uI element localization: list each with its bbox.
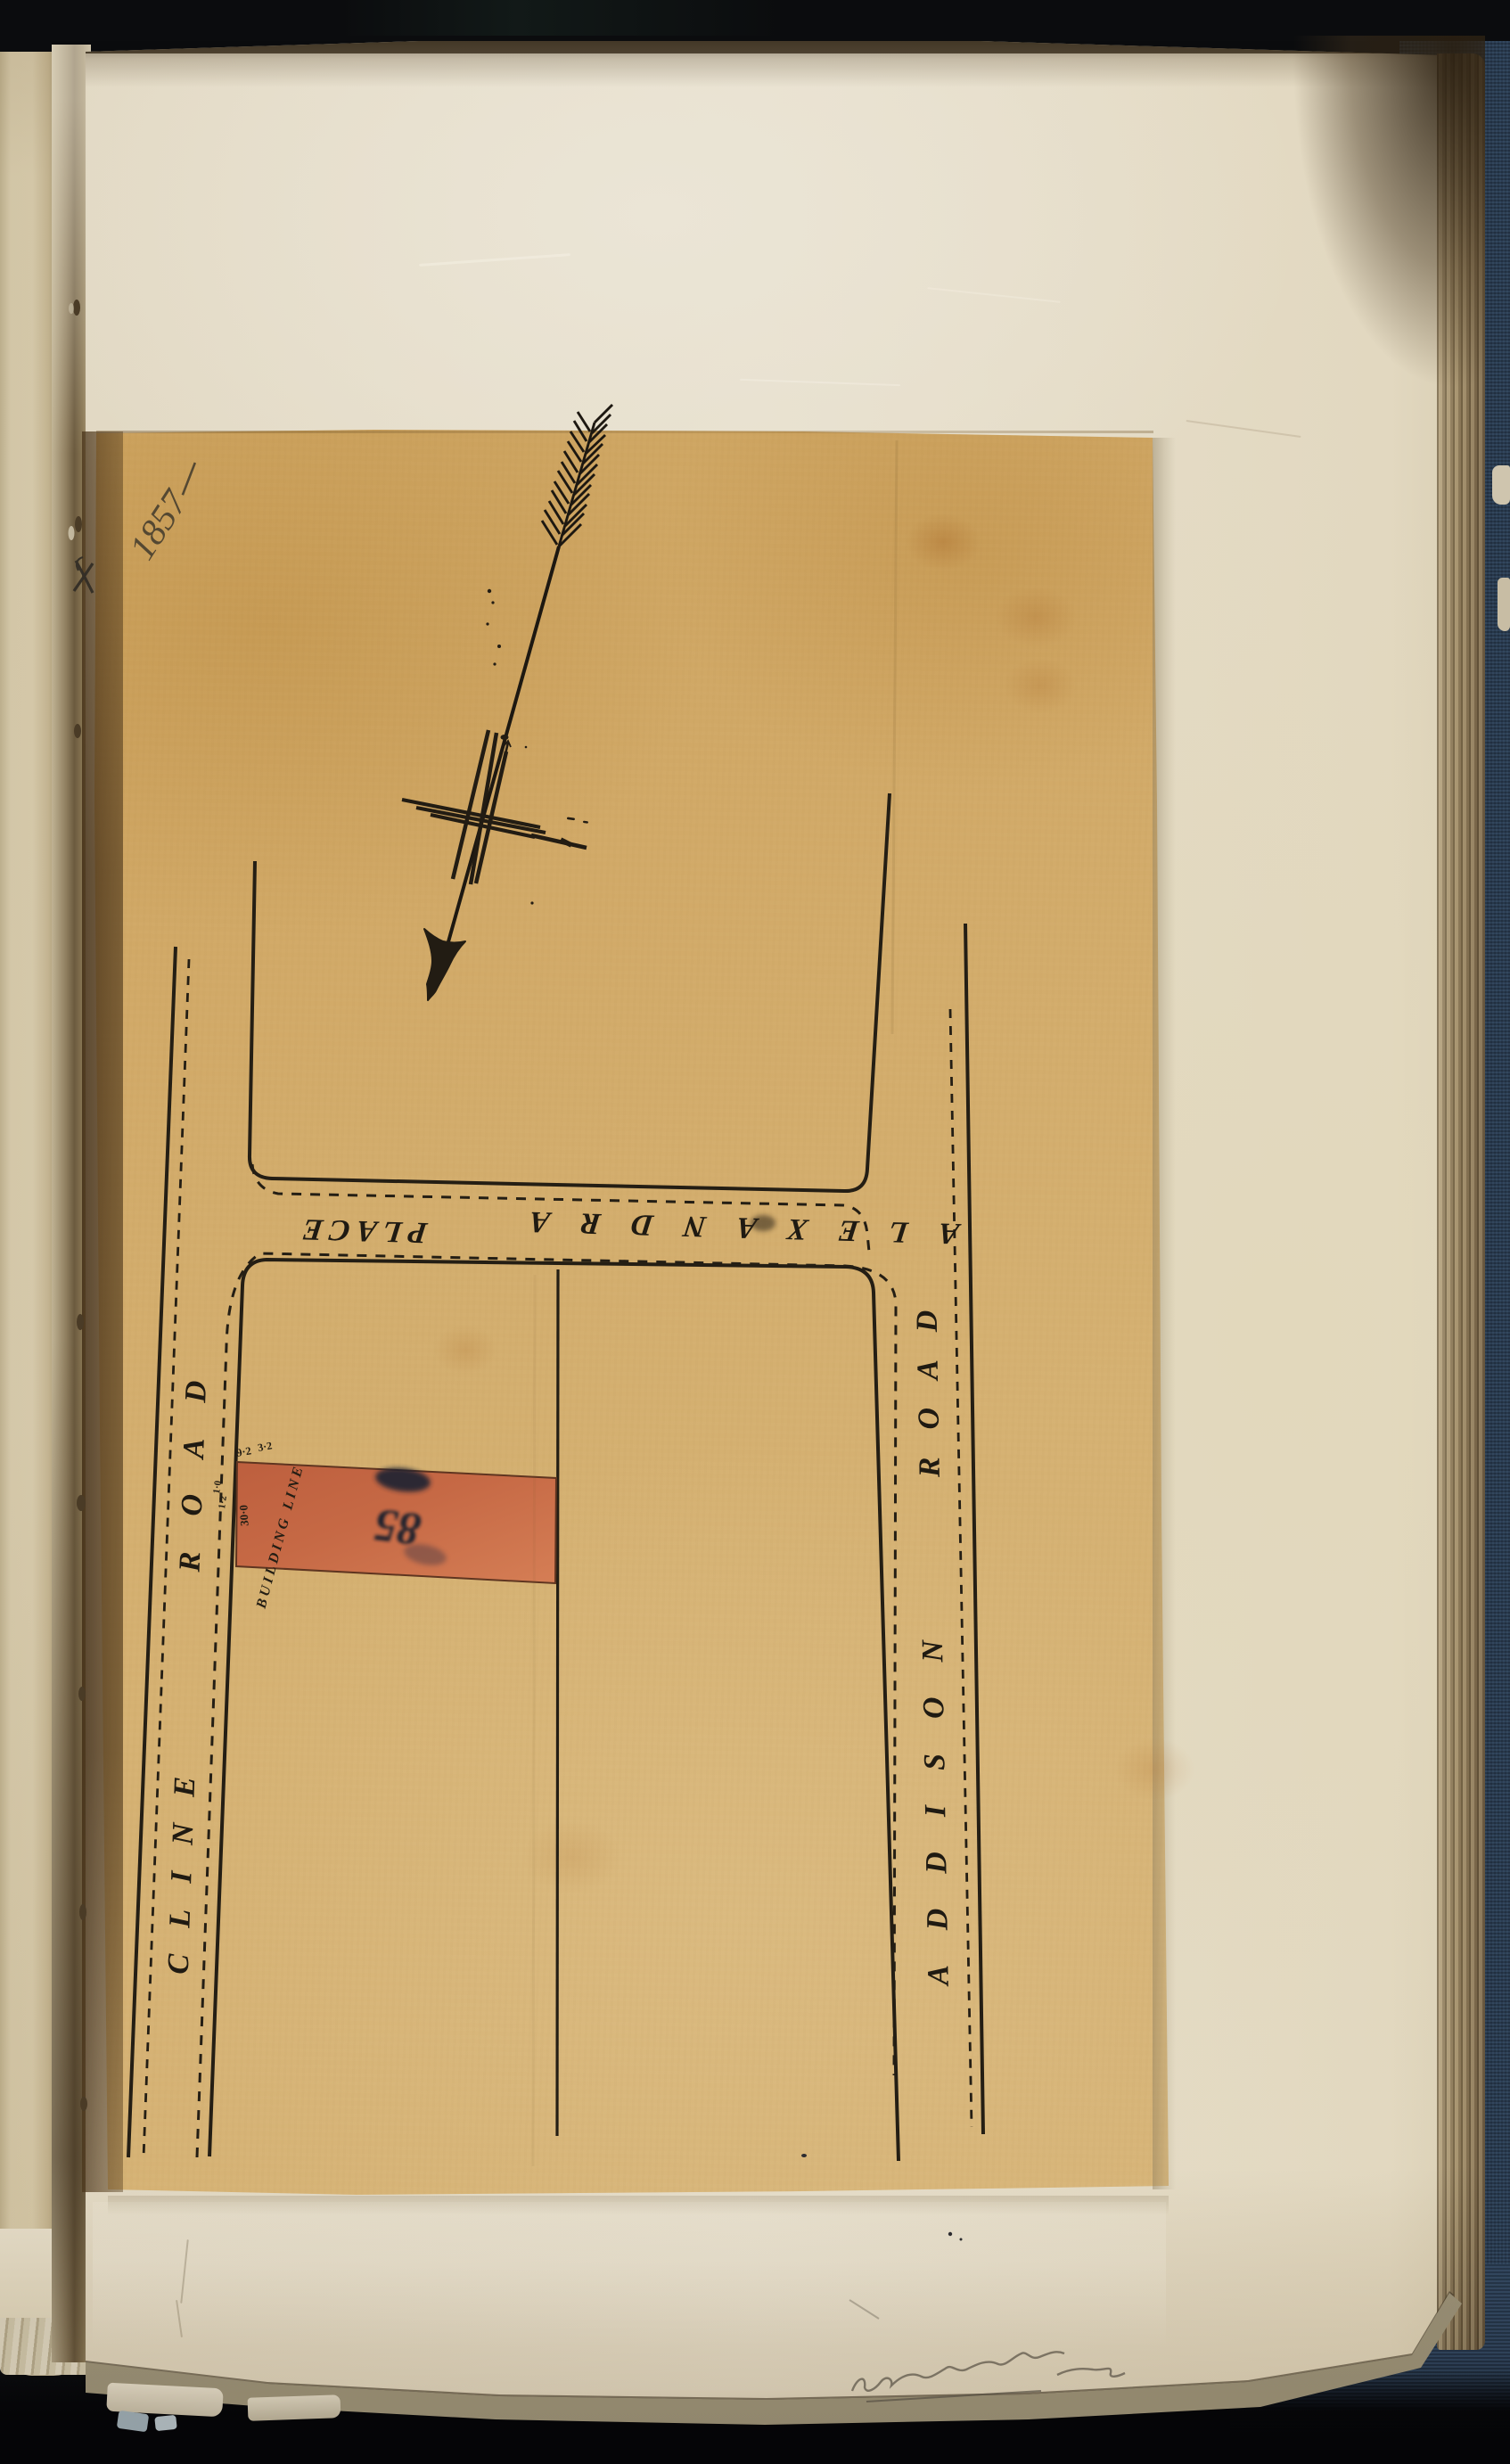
svg-text:PLACE: PLACE	[294, 1212, 431, 1249]
svg-text:1857: 1857	[121, 481, 196, 566]
svg-text:ROAD: ROAD	[910, 1282, 947, 1478]
svg-text:ADDISON: ADDISON	[915, 1606, 955, 1988]
svg-text:1·2: 1·2	[217, 1495, 229, 1510]
svg-text:3·2: 3·2	[257, 1439, 273, 1454]
svg-text:ROAD: ROAD	[174, 1344, 215, 1573]
svg-text:1·0: 1·0	[211, 1480, 224, 1495]
svg-text:9·2: 9·2	[235, 1444, 252, 1459]
svg-text:ALEXANDRA: ALEXANDRA	[496, 1204, 963, 1250]
svg-text:CLINE: CLINE	[162, 1750, 203, 1975]
svg-text:30·0: 30·0	[236, 1505, 250, 1527]
